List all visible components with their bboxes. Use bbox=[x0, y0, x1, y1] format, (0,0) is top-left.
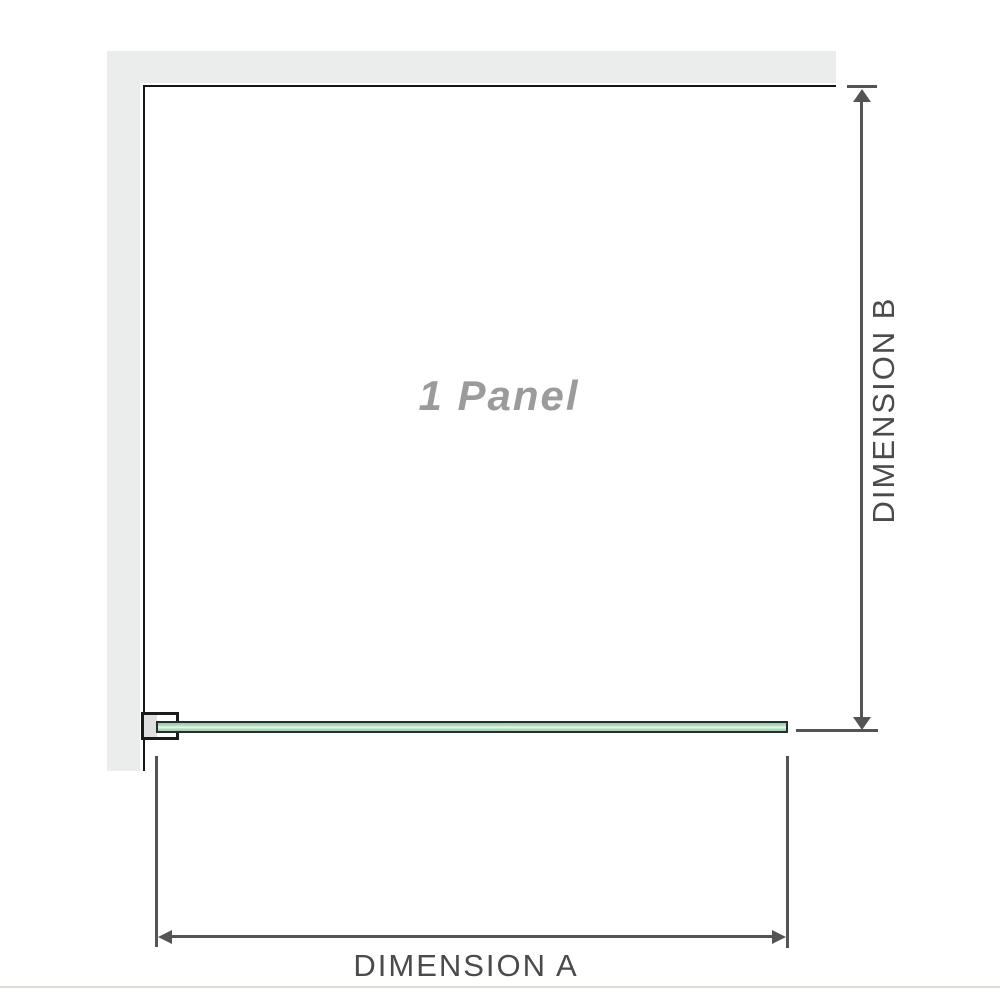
diagram-canvas: 1 Panel DIMENSION B DIMENSION A bbox=[0, 0, 1000, 1000]
wall-top-strip bbox=[107, 51, 836, 83]
dimension-a-arrow-right-icon bbox=[772, 930, 786, 944]
dimension-b-top-tick bbox=[847, 85, 877, 88]
dimension-b-line bbox=[860, 98, 863, 720]
dimension-a-arrow-left-icon bbox=[158, 930, 172, 944]
page-divider-line bbox=[0, 986, 1000, 988]
glass-panel-bar bbox=[156, 721, 788, 733]
dimension-a-label: DIMENSION A bbox=[353, 948, 578, 984]
dimension-b-arrow-down-icon bbox=[853, 717, 871, 730]
dimension-b-label: DIMENSION B bbox=[866, 297, 902, 524]
panel-count-label: 1 Panel bbox=[418, 372, 579, 420]
dimension-a-line bbox=[170, 935, 772, 938]
wall-left-strip bbox=[107, 51, 140, 771]
panel-outline-left-edge bbox=[143, 85, 145, 771]
dimension-a-left-extension-line bbox=[155, 756, 158, 947]
panel-outline-top-edge bbox=[143, 85, 836, 87]
dimension-a-right-extension-line bbox=[786, 756, 789, 948]
dimension-b-arrow-up-icon bbox=[853, 89, 871, 102]
